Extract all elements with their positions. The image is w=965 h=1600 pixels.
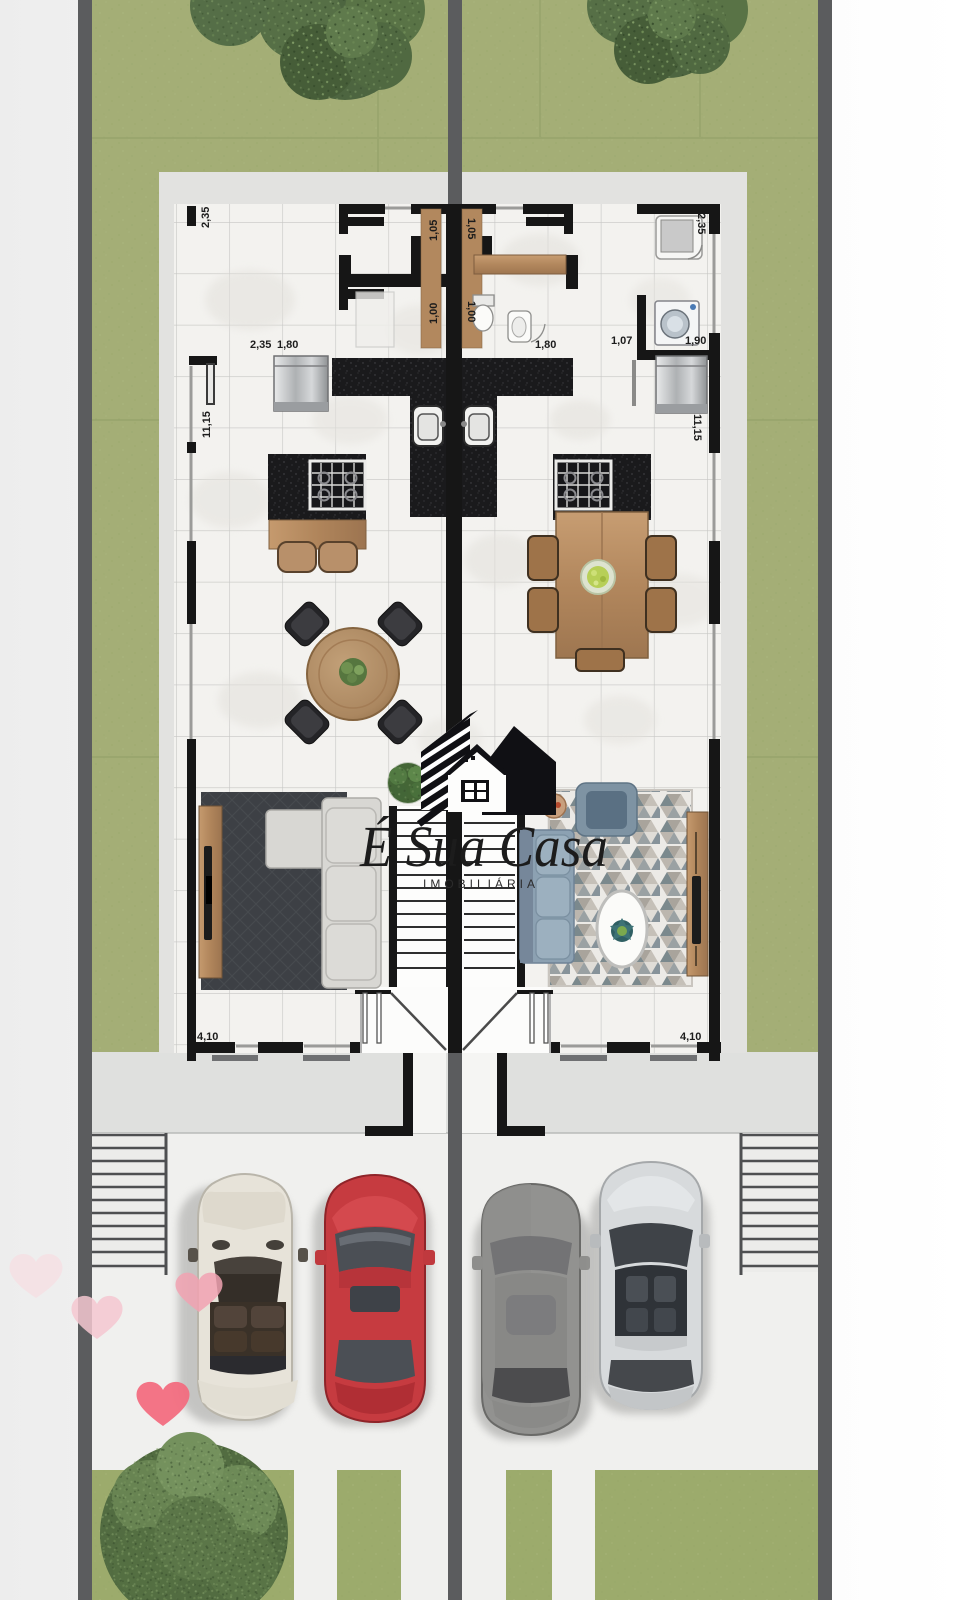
- svg-text:11,15: 11,15: [691, 414, 703, 441]
- svg-text:1,80: 1,80: [277, 339, 298, 351]
- svg-text:2,35: 2,35: [695, 213, 707, 234]
- svg-text:4,10: 4,10: [680, 1031, 701, 1043]
- svg-text:1,05: 1,05: [465, 218, 477, 239]
- svg-text:1,90: 1,90: [685, 335, 706, 347]
- svg-text:1,07: 1,07: [611, 335, 632, 347]
- svg-text:2,35: 2,35: [200, 207, 212, 228]
- svg-text:É Sua Casa: É Sua Casa: [359, 814, 608, 879]
- svg-text:1,05: 1,05: [428, 220, 440, 241]
- svg-text:11,15: 11,15: [201, 411, 213, 438]
- svg-text:1,80: 1,80: [535, 339, 556, 351]
- svg-text:1,00: 1,00: [465, 301, 477, 322]
- svg-text:4,10: 4,10: [197, 1031, 218, 1043]
- svg-text:2,35: 2,35: [250, 339, 271, 351]
- svg-text:1,00: 1,00: [428, 303, 440, 324]
- svg-text:IMOBILIÁRIA: IMOBILIÁRIA: [423, 876, 539, 891]
